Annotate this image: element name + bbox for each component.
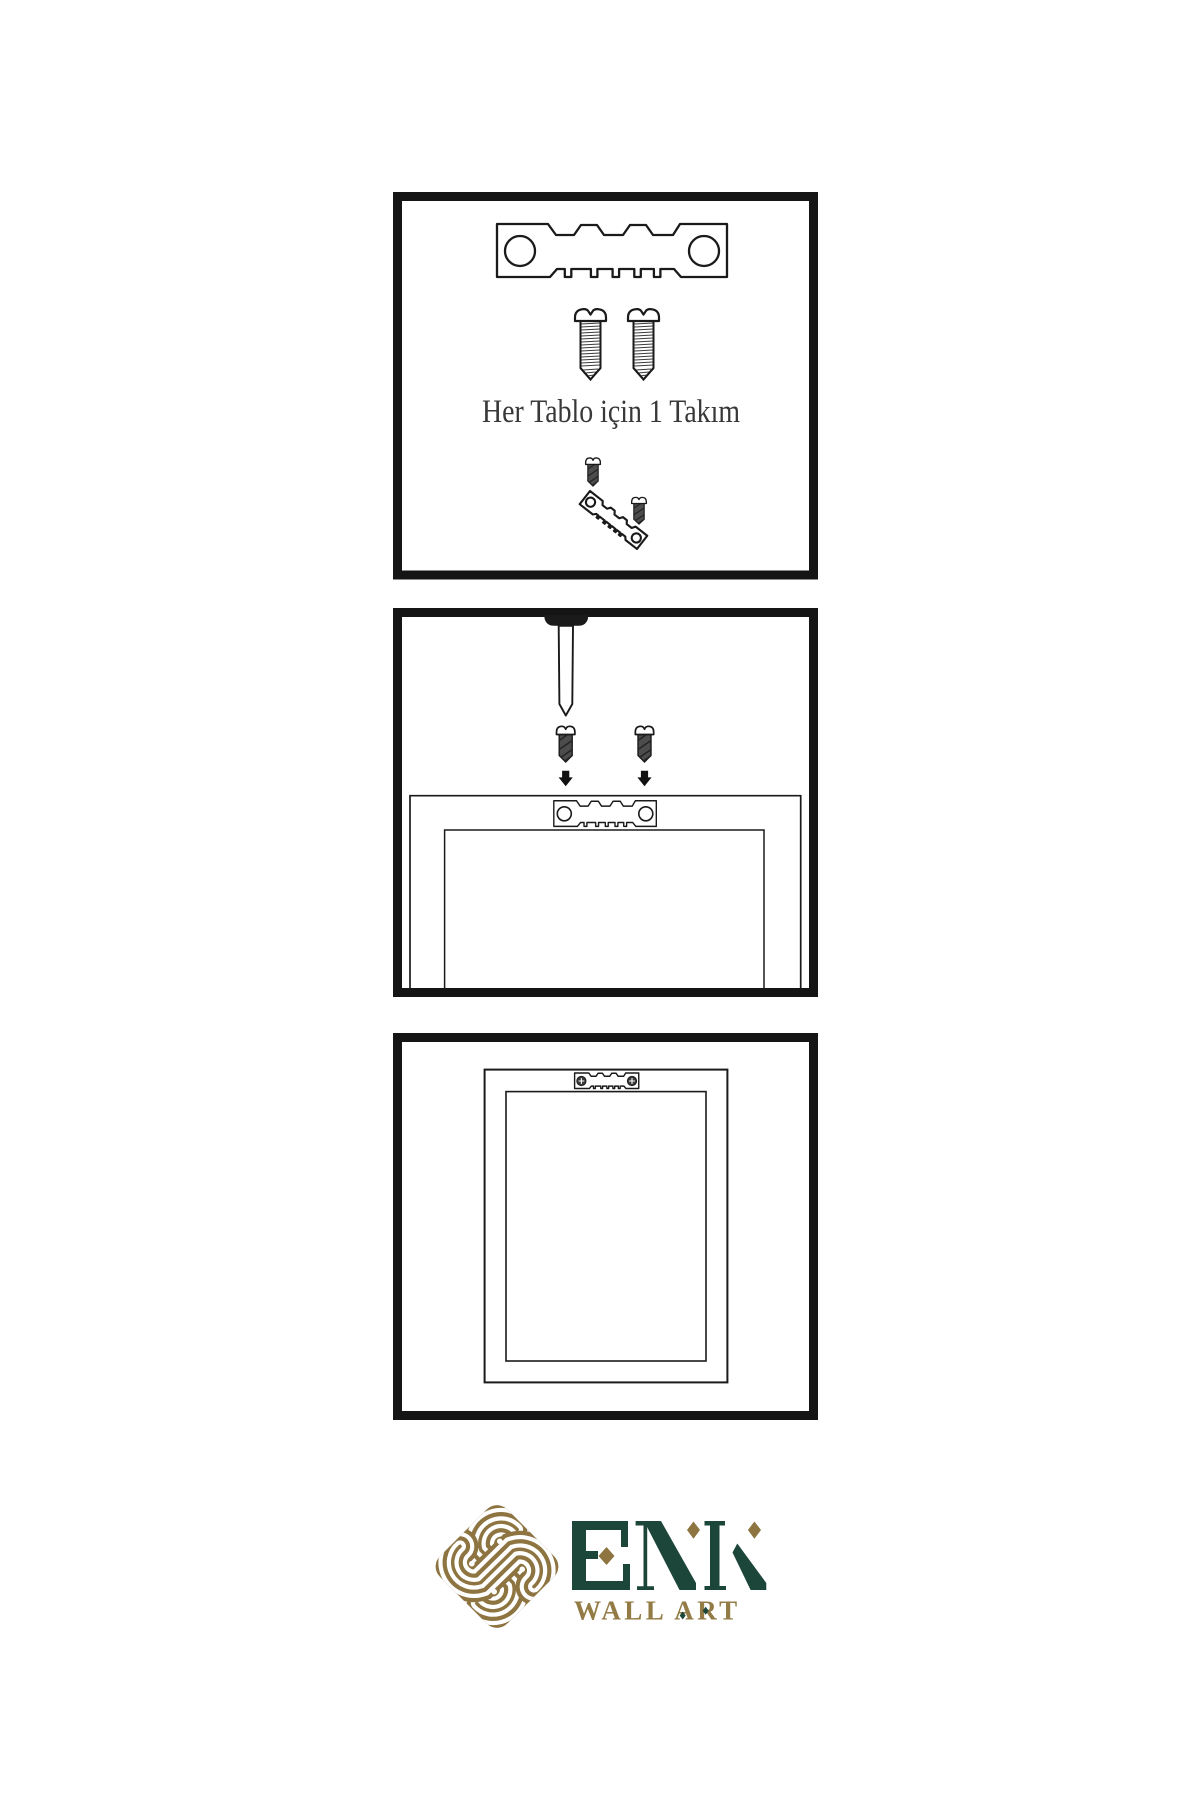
svg-text:WALL ART: WALL ART	[574, 1596, 741, 1626]
svg-text:Her Tablo için 1 Takım: Her Tablo için 1 Takım	[482, 394, 740, 430]
